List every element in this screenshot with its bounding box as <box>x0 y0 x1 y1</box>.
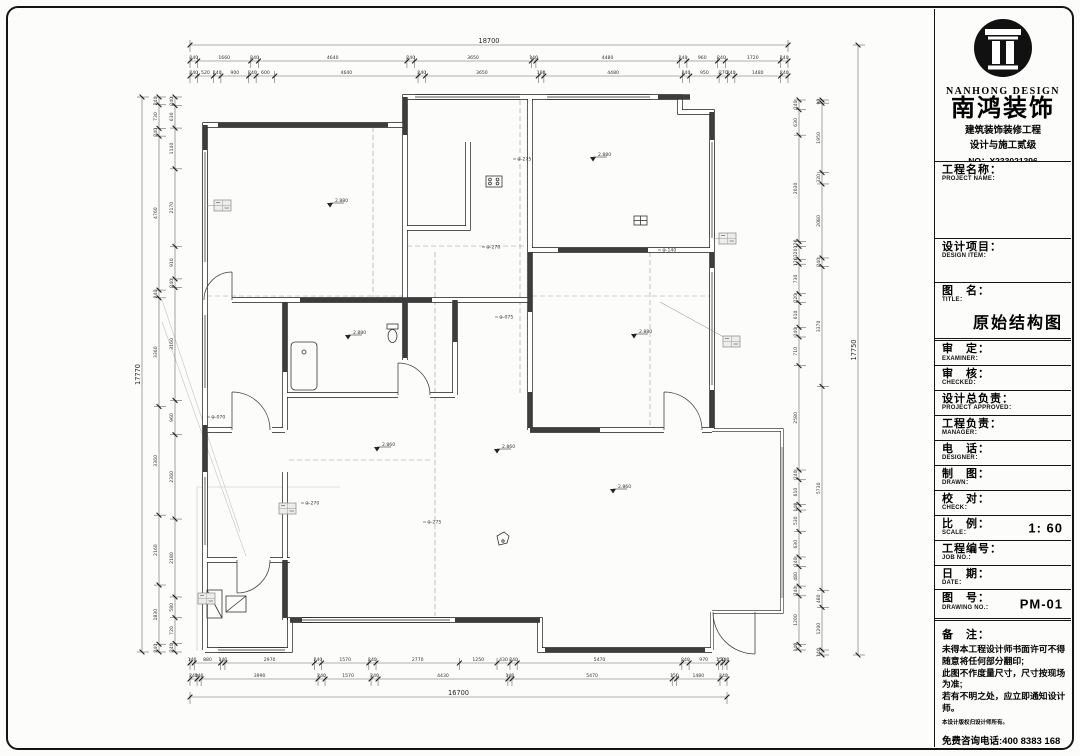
brand-name-cn: 南鸿装饰 <box>935 97 1071 122</box>
svg-text:240: 240 <box>793 557 799 566</box>
svg-text:1250: 1250 <box>472 657 484 663</box>
svg-text:240: 240 <box>417 70 426 76</box>
svg-text:240: 240 <box>793 328 799 337</box>
field-label-en: DESIGN ITEM： <box>942 253 1067 260</box>
svg-text:240: 240 <box>727 70 736 76</box>
svg-text:3160: 3160 <box>169 338 175 350</box>
svg-text:5470: 5470 <box>586 673 598 679</box>
field-date: 日 期： DATE： <box>935 566 1071 591</box>
svg-text:910: 910 <box>169 258 175 267</box>
field-label-en: MANAGER： <box>942 430 1067 437</box>
svg-text:2170: 2170 <box>169 202 175 214</box>
svg-text:1830: 1830 <box>153 609 159 621</box>
svg-text:630: 630 <box>793 540 799 549</box>
svg-text:1200: 1200 <box>793 614 799 626</box>
svg-text:480: 480 <box>816 594 822 603</box>
svg-text:4480: 4480 <box>602 55 614 61</box>
svg-text:2.880: 2.880 <box>353 330 366 336</box>
svg-text:240: 240 <box>189 70 198 76</box>
brand-block: NANHONG DESIGN 南鸿装饰 建筑装饰装修工程 设计与施工贰级 NO：… <box>935 9 1071 162</box>
svg-text:480: 480 <box>793 572 799 581</box>
svg-text:240: 240 <box>816 258 822 267</box>
svg-text:610: 610 <box>793 488 799 497</box>
svg-text:900: 900 <box>230 70 239 76</box>
svg-text:1950: 1950 <box>816 132 822 144</box>
svg-text:730: 730 <box>153 112 159 121</box>
svg-text:⊕-270: ⊕-270 <box>305 501 319 507</box>
svg-text:2.860: 2.860 <box>382 442 395 448</box>
toilet-icon <box>387 324 398 343</box>
field-label-cn: 工程编号： <box>942 543 1067 555</box>
svg-text:3360: 3360 <box>153 455 159 467</box>
svg-text:3650: 3650 <box>476 70 488 76</box>
svg-text:140: 140 <box>218 657 227 663</box>
walls-hollow <box>205 97 782 650</box>
field-label-cn: 设计项目： <box>942 241 1067 253</box>
svg-text:240: 240 <box>370 673 379 679</box>
svg-text:240: 240 <box>406 55 415 61</box>
field-project-name: 工程名称： PROJECT NAME： <box>935 162 1071 239</box>
svg-text:140: 140 <box>793 643 799 652</box>
svg-text:970: 970 <box>699 657 708 663</box>
field-scale: 比 例： SCALE： 1: 60 <box>935 516 1071 541</box>
svg-text:4640: 4640 <box>341 70 353 76</box>
svg-text:630: 630 <box>793 118 799 127</box>
svg-text:240: 240 <box>213 70 222 76</box>
field-label-en: JOB NO.： <box>942 555 1067 562</box>
field-label-en: CHECK： <box>942 505 1067 512</box>
note-line: 若有不明之处，应立即通知设计师。 <box>942 691 1066 715</box>
svg-text:240: 240 <box>780 70 789 76</box>
field-label-en: PROJECT NAME： <box>942 176 1067 183</box>
field-label-cn: 日 期： <box>942 568 1067 580</box>
svg-text:3370: 3370 <box>816 321 822 333</box>
svg-text:120: 120 <box>793 257 799 266</box>
field-designer-phone: 电 话： DESIGNER： <box>935 441 1071 466</box>
walls-structural <box>205 97 712 650</box>
svg-text:140: 140 <box>721 657 730 663</box>
svg-text:240: 240 <box>250 55 259 61</box>
svg-text:2580: 2580 <box>793 412 799 424</box>
svg-text:1200: 1200 <box>816 623 822 635</box>
appliance-icon <box>634 216 647 225</box>
svg-text:140: 140 <box>506 673 515 679</box>
svg-text:240: 240 <box>681 657 690 663</box>
svg-text:240: 240 <box>682 70 691 76</box>
svg-text:240: 240 <box>780 55 789 61</box>
notes-label: 备 注： <box>942 626 1066 642</box>
svg-text:240: 240 <box>679 55 688 61</box>
svg-text:240: 240 <box>793 470 799 479</box>
svg-text:240: 240 <box>153 128 159 137</box>
field-label-en: TITLE： <box>942 297 1067 304</box>
field-label-cn: 审 定： <box>942 343 1067 355</box>
svg-text:17770: 17770 <box>134 364 142 385</box>
svg-text:880: 880 <box>203 657 212 663</box>
svg-text:140: 140 <box>793 503 799 512</box>
field-drawing-title: 图 名： TITLE： 原始结构图 <box>935 283 1071 342</box>
field-label-cn: 图 名： <box>942 285 1067 297</box>
svg-text:2770: 2770 <box>412 657 424 663</box>
svg-text:240: 240 <box>719 673 728 679</box>
field-drawing-no: 图 号： DRAWING NO.： PM-01 <box>935 590 1071 620</box>
svg-text:1570: 1570 <box>342 673 354 679</box>
svg-text:4760: 4760 <box>153 207 159 219</box>
field-label-cn: 校 对： <box>942 493 1067 505</box>
floor-plan-drawing: 2.8802.8802.8802.8802.8602.8602.860⊕-275… <box>0 0 934 756</box>
svg-text:⊕-275: ⊕-275 <box>517 157 531 163</box>
svg-text:530: 530 <box>793 516 799 525</box>
svg-text:1570: 1570 <box>339 657 351 663</box>
svg-text:17750: 17750 <box>850 340 858 361</box>
field-label-cn: 审 核： <box>942 368 1067 380</box>
dimension-chains: 1870024016602404640240365014044802409602… <box>134 37 865 704</box>
svg-text:5730: 5730 <box>816 482 822 494</box>
note-line: 此图不作度量尺寸，尺寸按现场为准; <box>942 668 1066 692</box>
svg-text:240: 240 <box>314 657 323 663</box>
svg-text:240: 240 <box>153 644 159 653</box>
svg-text:240: 240 <box>248 70 257 76</box>
notes-section: 备 注： 未得本工程设计师书面许可不得随意将任何部分翻印; 此图不作度量尺寸，尺… <box>935 621 1071 747</box>
nanhong-logo-icon <box>972 17 1034 79</box>
svg-text:580: 580 <box>169 603 175 612</box>
field-examiner: 审 定： EXAMINER： <box>935 341 1071 366</box>
svg-text:1660: 1660 <box>218 55 230 61</box>
svg-text:720: 720 <box>169 626 175 635</box>
svg-text:320: 320 <box>816 174 822 183</box>
svg-text:⊕-140: ⊕-140 <box>662 248 676 254</box>
svg-text:140: 140 <box>195 673 204 679</box>
field-label-cn: 工程名称： <box>942 164 1067 176</box>
svg-text:1720: 1720 <box>747 55 759 61</box>
scale-value: 1: 60 <box>1028 520 1063 535</box>
svg-text:240: 240 <box>169 97 175 106</box>
svg-text:950: 950 <box>700 70 709 76</box>
field-checked: 审 核： CHECKED： <box>935 366 1071 391</box>
svg-text:140: 140 <box>816 648 822 657</box>
field-label-cn: 设计总负责： <box>942 393 1067 405</box>
svg-text:520: 520 <box>201 70 210 76</box>
svg-text:3990: 3990 <box>254 673 266 679</box>
svg-text:180: 180 <box>537 70 546 76</box>
field-drawn: 制 图： DRAWN： <box>935 466 1071 491</box>
svg-text:240: 240 <box>189 55 198 61</box>
svg-text:140: 140 <box>529 55 538 61</box>
drawing-no-value: PM-01 <box>1020 597 1063 612</box>
svg-text:⊕-275: ⊕-275 <box>427 520 441 526</box>
notes-hotline: 免费咨询电话:400 8383 168 <box>942 733 1066 747</box>
svg-text:140: 140 <box>188 657 197 663</box>
field-label-cn: 工程负责： <box>942 418 1067 430</box>
svg-text:1480: 1480 <box>752 70 764 76</box>
svg-text:240: 240 <box>368 657 377 663</box>
field-label-cn: 电 话： <box>942 443 1067 455</box>
svg-text:730: 730 <box>793 274 799 283</box>
svg-text:600: 600 <box>261 70 270 76</box>
construction-leader-lines <box>162 300 340 651</box>
svg-text:⊕-075: ⊕-075 <box>499 315 513 321</box>
svg-text:610: 610 <box>793 310 799 319</box>
svg-text:90: 90 <box>816 99 822 105</box>
field-check: 校 对： CHECK： <box>935 491 1071 516</box>
field-label-en: PROJECT APPROVED： <box>942 405 1067 412</box>
svg-text:960: 960 <box>698 55 707 61</box>
field-manager: 工程负责： MANAGER： <box>935 416 1071 441</box>
svg-text:320: 320 <box>793 248 799 257</box>
svg-text:18700: 18700 <box>479 37 500 45</box>
svg-text:2180: 2180 <box>169 552 175 564</box>
svg-text:2360: 2360 <box>169 471 175 483</box>
svg-text:2.880: 2.880 <box>335 198 348 204</box>
svg-text:4430: 4430 <box>437 673 449 679</box>
svg-text:2970: 2970 <box>264 657 276 663</box>
windows <box>205 97 782 650</box>
svg-text:2160: 2160 <box>153 544 159 556</box>
svg-text:2080: 2080 <box>816 215 822 227</box>
field-label-en: CHECKED： <box>942 380 1067 387</box>
svg-text:3650: 3650 <box>467 55 479 61</box>
field-label-en: EXAMINER： <box>942 356 1067 363</box>
field-job-no: 工程编号： JOB NO.： <box>935 541 1071 566</box>
field-label-en: DESIGNER： <box>942 455 1067 462</box>
svg-text:5470: 5470 <box>594 657 606 663</box>
field-design-item: 设计项目： DESIGN ITEM： <box>935 239 1071 283</box>
svg-text:240: 240 <box>153 96 159 105</box>
field-project-approved: 设计总负责： PROJECT APPROVED： <box>935 391 1071 416</box>
svg-text:960: 960 <box>169 413 175 422</box>
bathtub-icon <box>291 342 317 390</box>
brand-license-no: NO：X233021396 <box>935 155 1071 162</box>
brand-line1: 建筑装饰装修工程 <box>935 125 1071 137</box>
svg-text:2.860: 2.860 <box>502 444 515 450</box>
field-label-en: DRAWN： <box>942 480 1067 487</box>
svg-text:240: 240 <box>509 657 518 663</box>
svg-text:1480: 1480 <box>692 673 704 679</box>
svg-text:240: 240 <box>153 290 159 299</box>
svg-text:2.880: 2.880 <box>598 152 611 158</box>
floor-drain-icon <box>497 532 509 545</box>
svg-text:240: 240 <box>793 587 799 596</box>
svg-text:4480: 4480 <box>607 70 619 76</box>
note-line: 未得本工程设计师书面许可不得随意将任何部分翻印; <box>942 644 1066 668</box>
svg-text:16700: 16700 <box>448 689 469 697</box>
svg-text:2.880: 2.880 <box>639 329 652 335</box>
drawing-title-value: 原始结构图 <box>973 309 1063 333</box>
svg-text:430: 430 <box>499 657 508 663</box>
svg-text:240: 240 <box>169 279 175 288</box>
brand-line2: 设计与施工贰级 <box>935 140 1071 152</box>
field-label-en: DATE： <box>942 580 1067 587</box>
svg-text:1140: 1140 <box>169 143 175 155</box>
note-fine-print: 本设计版权归设计师所有。 <box>942 718 1066 726</box>
field-label-cn: 制 图： <box>942 468 1067 480</box>
svg-text:3360: 3360 <box>153 346 159 358</box>
svg-text:240: 240 <box>717 55 726 61</box>
svg-text:⊕-070: ⊕-070 <box>211 415 225 421</box>
svg-text:2.860: 2.860 <box>618 484 631 490</box>
fixtures <box>207 176 647 618</box>
svg-text:240: 240 <box>317 673 326 679</box>
svg-text:150: 150 <box>670 673 679 679</box>
svg-text:240: 240 <box>169 643 175 652</box>
title-block: NANHONG DESIGN 南鸿装饰 建筑装饰装修工程 设计与施工贰级 NO：… <box>934 9 1071 747</box>
svg-text:710: 710 <box>793 347 799 356</box>
svg-text:220: 220 <box>793 294 799 303</box>
svg-text:2630: 2630 <box>793 182 799 194</box>
stove-icon <box>486 176 502 187</box>
svg-text:4640: 4640 <box>327 55 339 61</box>
svg-text:⊕-270: ⊕-270 <box>486 245 500 251</box>
svg-text:240: 240 <box>793 100 799 109</box>
svg-text:630: 630 <box>169 112 175 121</box>
svg-text:120: 120 <box>793 240 799 249</box>
